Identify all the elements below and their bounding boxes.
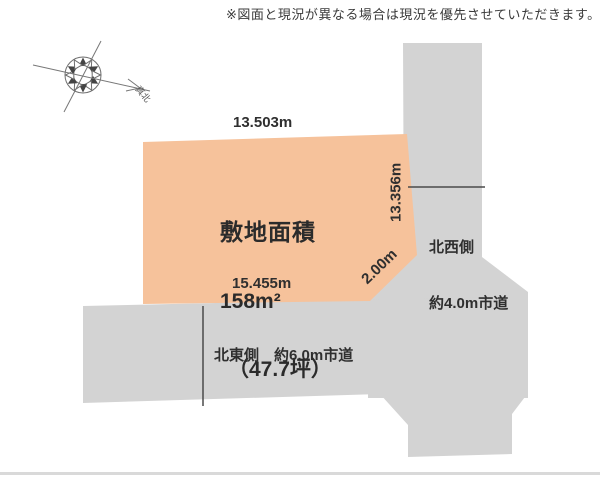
road-label-northwest: 北西側 約4.0m市道 (429, 201, 508, 351)
road-label-northwest-side: 北西側 (429, 239, 508, 258)
parcel-area-block: 敷地面積 158m² （47.7坪） (220, 178, 332, 423)
road-label-northwest-width: 約4.0m市道 (429, 295, 508, 314)
dimension-top: 13.503m (233, 114, 292, 133)
site-plan-page: ※図面と現況が異なる場合は現況を優先させていただきます。 真北 13.503m … (0, 0, 600, 480)
disclaimer-text: ※図面と現況が異なる場合は現況を優先させていただきます。 (226, 7, 600, 23)
road-label-northeast: 北東側 約6.0m市道 (214, 347, 353, 366)
dimension-right: 13.356m (388, 147, 407, 237)
bottom-divider-bar (0, 472, 600, 475)
parcel-area-size: 158m² (220, 289, 332, 315)
compass-rose-icon (33, 41, 150, 112)
parcel-area-title: 敷地面積 (220, 218, 332, 247)
